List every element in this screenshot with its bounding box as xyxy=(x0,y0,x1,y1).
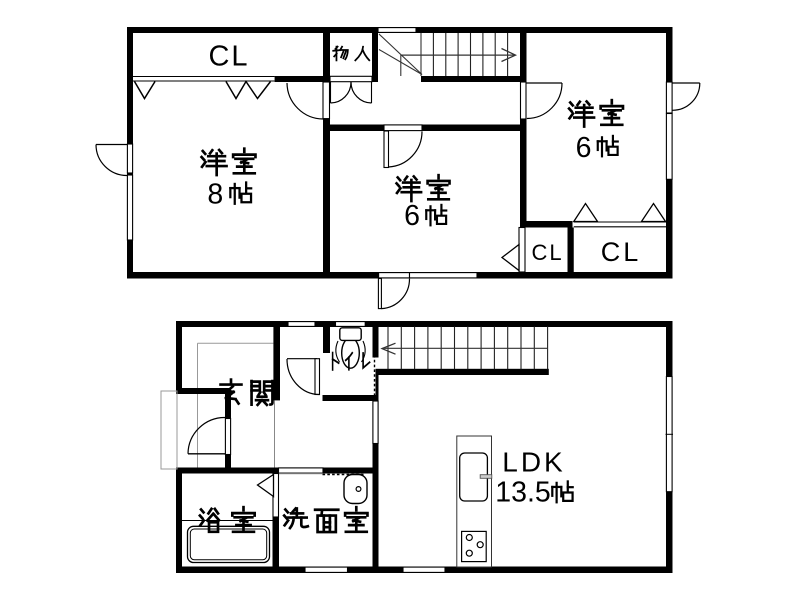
svg-text:8: 8 xyxy=(207,179,223,211)
svg-text:LDK: LDK xyxy=(502,447,565,478)
svg-text:CL: CL xyxy=(208,41,249,73)
svg-text:CL: CL xyxy=(531,240,563,265)
svg-text:6: 6 xyxy=(404,200,420,232)
svg-text:6: 6 xyxy=(576,132,592,164)
svg-text:13.5: 13.5 xyxy=(495,477,550,509)
svg-text:CL: CL xyxy=(601,237,642,267)
